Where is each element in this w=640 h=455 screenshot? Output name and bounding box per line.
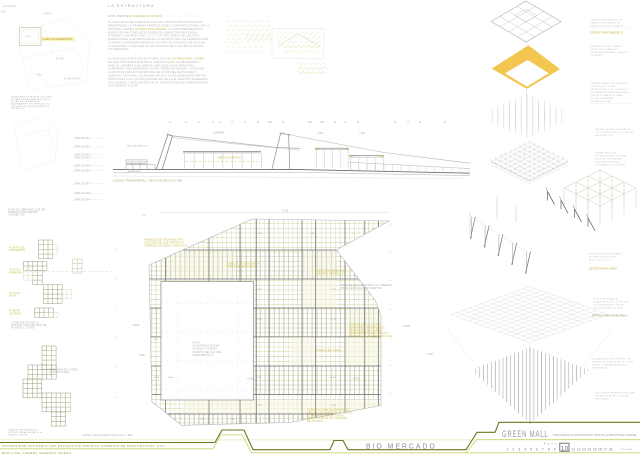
svg-text:CUANDO SE APOYA PLANTA DE: CUANDO SE APOYA PLANTA DE [590, 82, 628, 85]
svg-text:COSTADOS AL PASO MODULO: COSTADOS AL PASO MODULO [349, 332, 389, 335]
svg-text:TRIANGULO BASITANO ROTA+CRIST: TRIANGULO BASITANO ROTA+CRISTINA+SANE [553, 433, 637, 437]
svg-text:10: 10 [561, 446, 569, 453]
svg-text:+5.00: +5.00 [317, 133, 324, 135]
svg-text:CERCHAS UNA UNA LUZ MAXIMA DE: CERCHAS UNA UNA LUZ MAXIMA DE 15 X 15 RE… [108, 74, 206, 78]
svg-text:CIMA EL CON MUROS DE: CIMA EL CON MUROS DE [590, 22, 620, 25]
svg-text:DE ACCESO: DE ACCESO [307, 420, 323, 423]
svg-text:DE LA PIEL: DE LA PIEL [590, 54, 604, 57]
svg-text:PATIO DE SERVICIO: PATIO DE SERVICIO [127, 145, 148, 148]
svg-text:CAPA SOLAR 3: CAPA SOLAR 3 [74, 154, 91, 157]
svg-text:5.00 +: 5.00 + [168, 377, 175, 379]
svg-text:COLINDANTES: COLINDANTES [108, 47, 129, 51]
svg-text:FORMA ACERCA EL MARCO: FORMA ACERCA EL MARCO [590, 45, 623, 48]
svg-text:C: C [212, 121, 214, 124]
svg-text:ALZADO TRANSVERSAL / SECCION E: ALZADO TRANSVERSAL / SECCION ESCALA 1:50… [113, 180, 183, 183]
svg-text:CAPA SOLAR 5: CAPA SOLAR 5 [74, 165, 91, 168]
svg-text:ZONA QUE MARCA EL ESPACIO: ZONA QUE MARCA EL ESPACIO [590, 51, 628, 54]
svg-text:+10.00: +10.00 [132, 325, 140, 327]
svg-text:PUESTOS CENTRALES: PUESTOS CENTRALES [315, 272, 346, 275]
svg-text:PLANTA DE 2 POR PUESTO: PLANTA DE 2 POR PUESTO [349, 326, 385, 329]
svg-text:ZONA DE MUELLE: ZONA DE MUELLE [127, 163, 146, 166]
svg-text:SE RESUELVE ASI: SE RESUELVE ASI [590, 100, 612, 103]
svg-text:TRAMA DE M DE LUZ DE UNA: TRAMA DE M DE LUZ DE UNA [593, 301, 629, 304]
svg-text:LA PLANTA DE LAS GRUPOS UN: LA PLANTA DE LAS GRUPOS UN [592, 358, 631, 361]
svg-text:LUZ DE LA PLANTA: LUZ DE LA PLANTA [590, 97, 613, 100]
svg-text:+7.40: +7.40 [330, 377, 336, 379]
svg-text:DOS PARTES DIFERENCIADAS: DOS PARTES DIFERENCIADAS [108, 14, 162, 18]
svg-text:UBICAN LOS PUESTOS DE VENTA: UBICAN LOS PUESTOS DE VENTA [307, 411, 352, 414]
svg-text:ORDENANZA: ORDENANZA [592, 367, 608, 370]
svg-text:CUADRO RESUMEN DE: CUADRO RESUMEN DE [8, 429, 37, 432]
svg-text:+7.40: +7.40 [330, 289, 336, 291]
svg-text:GREEN MALL: GREEN MALL [502, 429, 548, 440]
svg-text:FORMA TECNICA DE DE 15 X 15 M: FORMA TECNICA DE DE 15 X 15 M [592, 361, 633, 364]
svg-text:+10.00: +10.00 [403, 326, 411, 328]
svg-text:CAPA SOLAR 2: CAPA SOLAR 2 [74, 146, 91, 149]
svg-text:PRIMERA: PRIMERA [9, 271, 22, 274]
svg-text:8: 8 [548, 447, 550, 451]
svg-text:APOYO DE 7,2 X 5: APOYO DE 7,2 X 5 [589, 258, 612, 261]
svg-text:18: 18 [609, 447, 613, 451]
svg-text:3: 3 [518, 447, 520, 451]
svg-text:C: C [185, 121, 187, 124]
svg-text:9: 9 [554, 447, 556, 451]
svg-text:ZONA MAS PUBLICA DONDE SE: ZONA MAS PUBLICA DONDE SE [307, 409, 349, 412]
svg-text:ESTA PIEZA ELEMENTO DE: ESTA PIEZA ELEMENTO DE [590, 19, 623, 22]
svg-text:+5.00: +5.00 [353, 378, 360, 381]
svg-text:PLANO 1:500/M: PLANO 1:500/M [8, 434, 27, 437]
svg-text:EXPLICADO: EXPLICADO [595, 398, 609, 401]
svg-text:+7.20: +7.20 [256, 289, 262, 291]
svg-text:VIAL: VIAL [37, 73, 43, 76]
svg-text:+ 7.20: + 7.20 [153, 377, 160, 379]
svg-text:CERRAMIENTO: CERRAMIENTO [193, 354, 213, 357]
svg-text:ESQUEMA DE LA RED: ESQUEMA DE LA RED [50, 369, 78, 372]
svg-text:EL PROYECTO SE COMPONE POR DOS: EL PROYECTO SE COMPONE POR DOS PARTES ES… [108, 20, 203, 24]
svg-text:LA ESTRUCTURA EXTERIOR QUE SE: LA ESTRUCTURA EXTERIOR QUE SE COMPONE DE… [108, 70, 197, 74]
svg-text:2: 2 [512, 447, 514, 451]
svg-text:CAPA SOLAR 6: CAPA SOLAR 6 [74, 169, 91, 172]
svg-text:C: C [169, 121, 171, 124]
svg-text:DE CARGA SE HACE NECESARIO: DE CARGA SE HACE NECESARIO [590, 91, 630, 94]
svg-text:6: 6 [536, 447, 538, 451]
svg-text:BAJA: BAJA [9, 295, 16, 298]
svg-text:VENTA POR LOS CUATRO: VENTA POR LOS CUATRO [349, 329, 383, 332]
svg-text:PUNTUALES CON LA ZONA DONDE SE: PUNTUALES CON LA ZONA DONDE SE HALLA EL … [108, 77, 208, 81]
svg-text:C: C [219, 121, 221, 124]
svg-text:+3.60: +3.60 [359, 133, 366, 135]
svg-text:PUESTO DE VENTA: PUESTO DE VENTA [316, 349, 342, 352]
svg-text:LA CUBIERTA SOLAR: LA CUBIERTA SOLAR [108, 84, 138, 88]
svg-text:MARIA DEL CARMEN GENEROS VALER: MARIA DEL CARMEN GENEROS VALERO [2, 451, 72, 455]
svg-text:ESTRUCTURA CON LOS MUROS: ESTRUCTURA CON LOS MUROS [590, 88, 629, 91]
svg-text:ESTRUCTURA AMABLEREAL: ESTRUCTURA AMABLEREAL [592, 314, 628, 318]
svg-text:PLANTAS LA PRIMERA ESPECIALI: PLANTAS LA PRIMERA ESPECIALIZA TIPO UN F… [108, 41, 205, 45]
svg-text:MALLA DE LUZ: MALLA DE LUZ [595, 134, 613, 137]
svg-text:TRAMA VERTICAL: TRAMA VERTICAL [595, 151, 617, 154]
svg-text:+7.40: +7.40 [330, 405, 336, 407]
svg-text:LA CUBIERTA DEL TABLET Y: LA CUBIERTA DEL TABLET Y [593, 304, 627, 307]
svg-text:CARPA DE CELEBRACION: CARPA DE CELEBRACION [43, 38, 73, 41]
svg-text:CUBIERTAS: CUBIERTAS [9, 249, 25, 252]
svg-text:DE PILARES PUNTUALES: DE PILARES PUNTUALES [595, 163, 626, 166]
svg-text:JUNTO A LA MALLA VIGA: JUNTO A LA MALLA VIGA [593, 307, 623, 310]
svg-text:PASILLO ANCHO DE LA CARPA: PASILLO ANCHO DE LA CARPA [307, 417, 348, 420]
svg-text:UNIVERSIDAD SAN PABLO CEU ESCU: UNIVERSIDAD SAN PABLO CEU ESCUELA POLITE… [2, 444, 164, 448]
svg-text:+5.00: +5.00 [139, 355, 146, 357]
svg-text:HORMIGON QUE FORMA LA: HORMIGON QUE FORMA LA [590, 25, 623, 28]
svg-text:CAPA SOLAR 8: CAPA SOLAR 8 [74, 192, 91, 195]
svg-text:1: 1 [507, 447, 509, 451]
svg-text:15: 15 [593, 447, 597, 451]
svg-text:LAS PIEZAS SEPARA DOBLE UNA: LAS PIEZAS SEPARA DOBLE UNA [595, 392, 635, 395]
svg-text:7: 7 [542, 447, 544, 451]
svg-text:CAPA SOLAR 1: CAPA SOLAR 1 [74, 137, 91, 140]
svg-text:EL ULTIMO PLANO A: EL ULTIMO PLANO A [593, 298, 618, 301]
svg-text:LEVES Y PLACAS SEGUN EL: LEVES Y PLACAS SEGUN EL [592, 364, 627, 367]
svg-text:+7.20: +7.20 [256, 319, 262, 321]
svg-text:11: 11 [572, 447, 576, 451]
svg-text:PILARES QUE DOBLES: PILARES QUE DOBLES [589, 255, 617, 258]
svg-text:CERRADO DE MALLA METALICA: CERRADO DE MALLA METALICA [145, 244, 188, 247]
svg-text:ZONA ANALIZADA ESCALA 1:500: ZONA ANALIZADA ESCALA 1:500 [83, 434, 133, 437]
svg-text:ALMACENES: ALMACENES [128, 170, 141, 173]
svg-text:MERC: MERC [25, 36, 32, 38]
svg-text:ESTRUCTURAS DETALLE A: ESTRUCTURAS DETALLE A [8, 431, 42, 434]
svg-text:LA ESTRUCTURA: LA ESTRUCTURA [108, 4, 154, 8]
svg-text:PUESTO DE 3,6 X 3,6 M: PUESTO DE 3,6 X 3,6 M [349, 325, 380, 327]
svg-text:SOPORTES EN PIES PARES: SOPORTES EN PIES PARES [589, 252, 623, 255]
svg-text:LA SEGUNDA PARTE ESTRUCTURAL E: LA SEGUNDA PARTE ESTRUCTURAL ES UNA ESTR… [108, 57, 204, 61]
svg-text:ESC: ESC [1, 11, 6, 14]
svg-text:ESTRUCTURAL: ESTRUCTURAL [50, 371, 70, 374]
svg-text:PATIO DE SERVICIO: PATIO DE SERVICIO [228, 265, 255, 268]
svg-text:CAPA SOLAR 4: CAPA SOLAR 4 [74, 157, 91, 160]
svg-text:+7.20: +7.20 [256, 405, 262, 407]
svg-text:13: 13 [582, 447, 586, 451]
svg-text:12: 12 [577, 447, 581, 451]
svg-text:PLANOS Y COTAS: PLANOS Y COTAS [12, 327, 36, 330]
svg-text:77.40: 77.40 [282, 210, 289, 213]
svg-text:CONCEPTOS: CONCEPTOS [8, 215, 25, 217]
svg-text:P a n o :: P a n o : [544, 442, 560, 445]
svg-text:EXTERIOR: EXTERIOR [11, 108, 24, 110]
svg-text:ESTRUCTURA TABLERO B: ESTRUCTURA TABLERO B [590, 31, 623, 35]
svg-text:PLAYA: PLAYA [44, 13, 52, 16]
svg-text:+7.20: +7.20 [330, 319, 336, 321]
svg-text:DE QUE POSTERES MAS DE EL ESP: DE QUE POSTERES MAS DE EL ESPACIO PARA L… [108, 60, 201, 64]
svg-text:SOTANO: SOTANO [9, 312, 20, 315]
svg-text:+5.00: +5.00 [247, 378, 254, 381]
svg-text:PERSIANA AL CIERRE METALICO: PERSIANA AL CIERRE METALICO [349, 335, 393, 338]
svg-text:CB: CB [308, 121, 312, 124]
svg-text:DIRECCIONES QUE ARRIOSTRAN LA: DIRECCIONES QUE ARRIOSTRAN LA ESTRUCTURA… [108, 37, 208, 41]
svg-text:5: 5 [530, 447, 532, 451]
svg-text:ESTRUCTURA LIGERA: ESTRUCTURA LIGERA [589, 267, 617, 271]
svg-text:4: 4 [524, 447, 526, 451]
svg-text:CUBIERTA: CUBIERTA [213, 132, 225, 135]
svg-text:JUNTO PROGRAMA UN: JUNTO PROGRAMA UN [590, 48, 618, 51]
svg-text:ESTRUCTURA METODO DE: ESTRUCTURA METODO DE [12, 324, 47, 327]
svg-text:+7.20: +7.20 [256, 377, 262, 379]
svg-text:MERCADO CENTRAL: MERCADO CENTRAL [218, 157, 242, 160]
svg-text:ESTRUCTURA DE CUBIERTA: ESTRUCTURA DE CUBIERTA [595, 395, 629, 398]
svg-text:14: 14 [587, 447, 591, 451]
svg-text:16: 16 [598, 447, 602, 451]
svg-text:+5.00: +5.00 [427, 354, 434, 356]
svg-text:23456789: 23456789 [620, 449, 633, 451]
svg-text:CAPA SOLAR 9: CAPA SOLAR 9 [74, 199, 91, 202]
svg-text:FORMADO UNA MALLA DE 7,2 X 7,2: FORMADO UNA MALLA DE 7,2 X 7,2 M CON DOB… [108, 34, 199, 38]
svg-text:BIO MERCADO: BIO MERCADO [366, 444, 437, 451]
svg-text:PRINCIPALES LA PRIMERA APAREC: PRINCIPALES LA PRIMERA APARECE COMO CONT… [108, 24, 210, 28]
svg-text:APOYOS DE PLANTAS: APOYOS DE PLANTAS [595, 157, 622, 160]
svg-text:A3 420x297: A3 420x297 [3, 5, 16, 8]
svg-text:C: C [198, 121, 200, 124]
svg-text:QUE LA FORMA A UN GRAN: QUE LA FORMA A UN GRAN [590, 94, 623, 97]
svg-text:AL MENOR ZONA DE CAJAS: AL MENOR ZONA DE CAJAS [307, 414, 344, 417]
svg-text:COMPARATIVA DE LA: COMPARATIVA DE LA [12, 321, 40, 324]
svg-text:FORMANDO UNA BARANDAS SUAVE V: FORMANDO UNA BARANDAS SUAVE VERDE EXTERI… [108, 67, 204, 71]
svg-text:17: 17 [603, 447, 607, 451]
svg-text:MUROS DE HA COMO ESTE BORDE D: MUROS DE HA COMO ESTE BORDE DE CARACTER … [108, 30, 197, 34]
svg-text:OCUPACION Y PIEZA: OCUPACION Y PIEZA [590, 85, 616, 88]
svg-text:+9.20: +9.20 [279, 133, 286, 135]
svg-text:C: C [244, 121, 246, 124]
svg-text:CAPA SOLAR 7: CAPA SOLAR 7 [74, 182, 91, 185]
svg-text:CB: CB [268, 121, 272, 124]
svg-text:CB: CB [320, 121, 324, 124]
svg-text:AV. ATLANTICO: AV. ATLANTICO [64, 77, 81, 80]
svg-text:PARA VENTILACION PUERTAS: PARA VENTILACION PUERTAS [341, 287, 382, 290]
svg-text:PLAZA: PLAZA [56, 58, 64, 61]
svg-text:LUZ Y PIEZAS DE 15 X 7 M CON: LUZ Y PIEZAS DE 15 X 7 M CON [595, 131, 634, 134]
svg-text:ESQUEMA VERTICAL: ESQUEMA VERTICAL [595, 160, 621, 163]
svg-text:PARTES DE UNA CELOSIA DE: PARTES DE UNA CELOSIA DE [595, 128, 631, 131]
svg-text:ESTRUCTURA A CELOSIA Y: ESTRUCTURA A CELOSIA Y [595, 154, 628, 157]
